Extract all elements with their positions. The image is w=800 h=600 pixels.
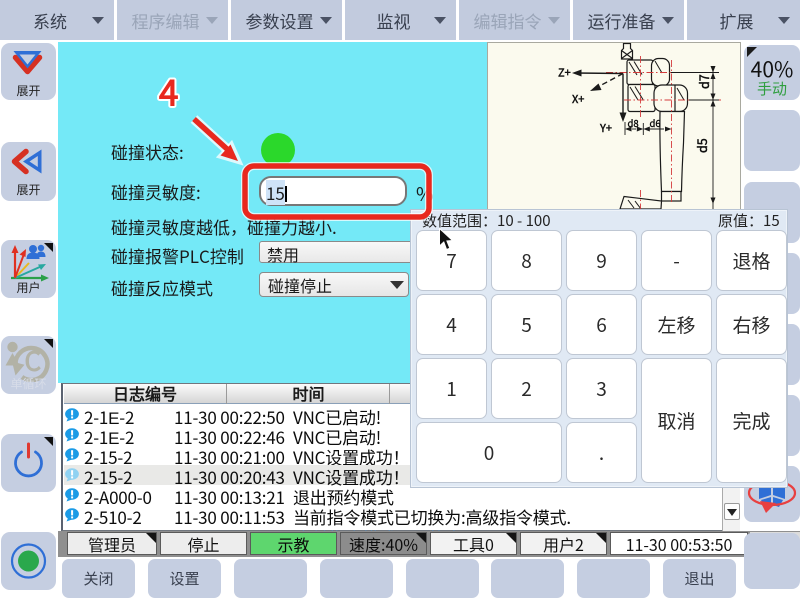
svg-text:d8: d8 — [628, 116, 640, 130]
svg-text:Z+: Z+ — [558, 65, 571, 81]
svg-text:d6: d6 — [650, 116, 662, 130]
svg-text:d7: d7 — [694, 74, 713, 89]
svg-text:X+: X+ — [571, 91, 584, 107]
svg-text:C: C — [25, 342, 42, 379]
svg-text:Y+: Y+ — [599, 120, 612, 136]
svg-text:d5: d5 — [692, 138, 711, 153]
